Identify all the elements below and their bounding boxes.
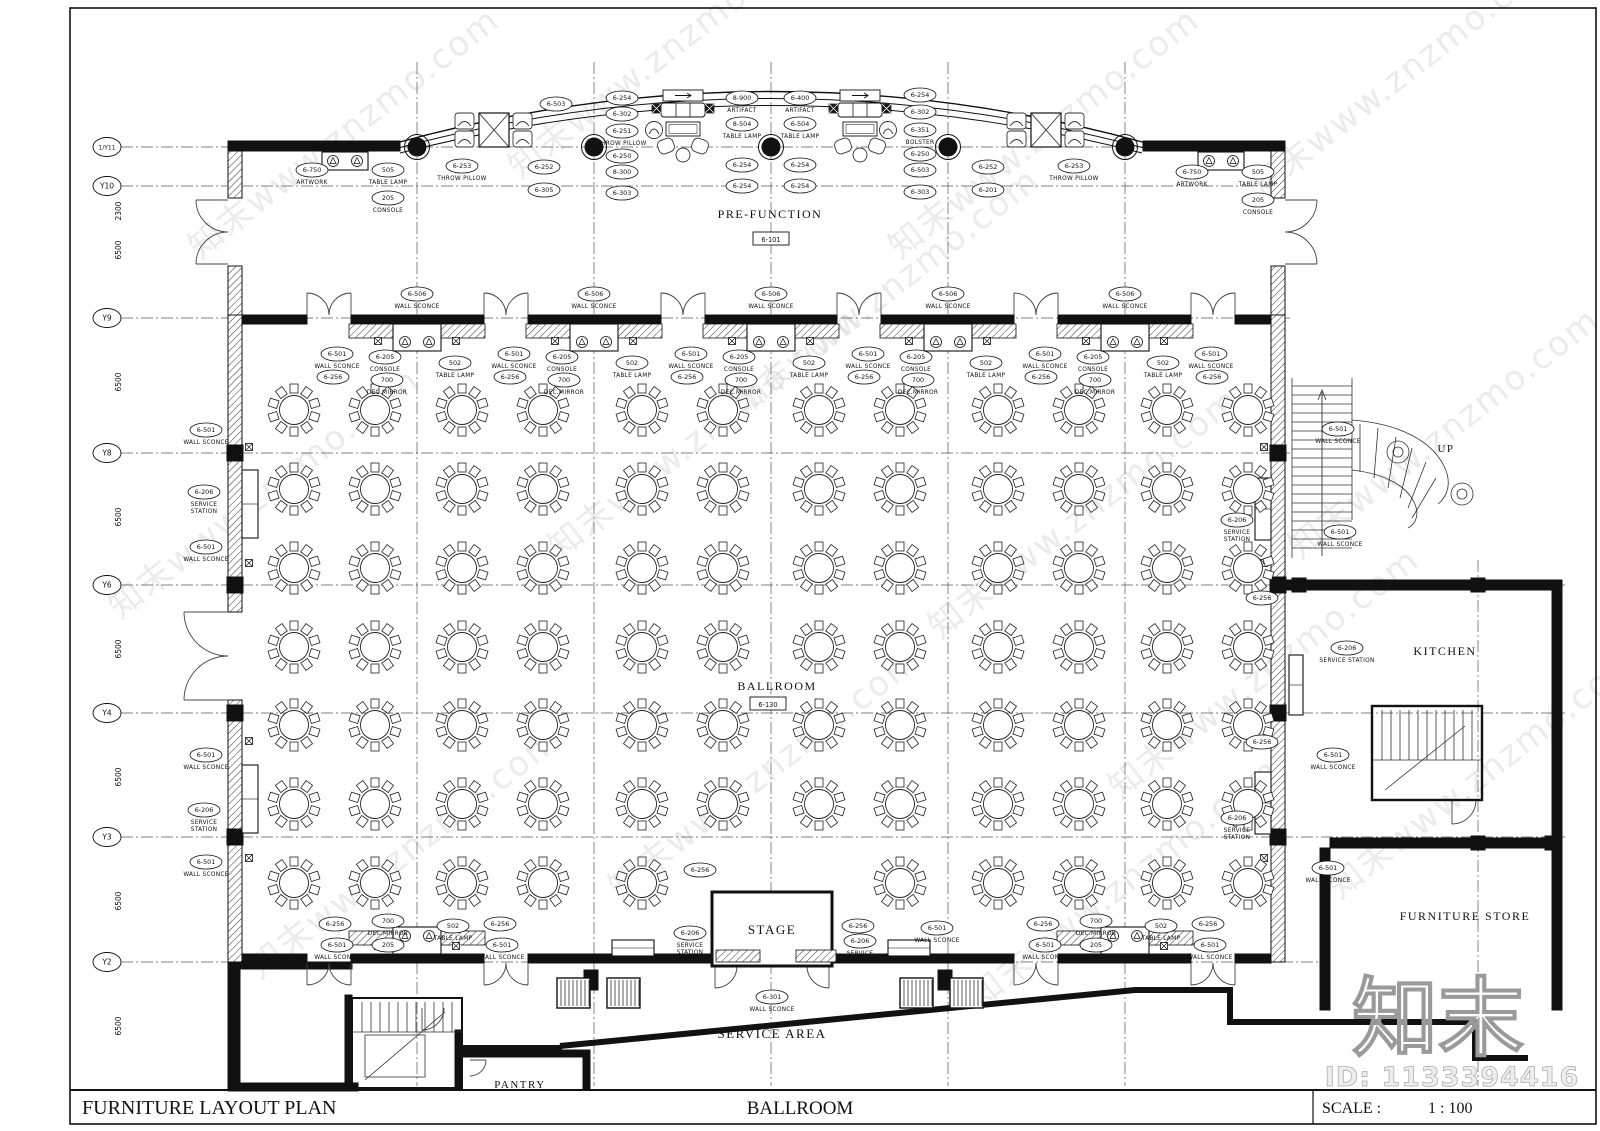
chair-icon <box>719 621 727 630</box>
callout-code: 502 <box>1155 922 1167 930</box>
chair-icon <box>697 556 708 566</box>
chair-icon <box>915 726 926 736</box>
chair-icon <box>290 427 298 436</box>
banquet-table <box>436 621 488 673</box>
chair-icon <box>979 624 991 636</box>
chair-icon <box>309 398 320 408</box>
callout-label: TABLE LAMP <box>368 180 408 186</box>
chair-icon <box>349 726 360 736</box>
callout-label: TABLE LAMP <box>435 373 475 379</box>
callout-code: 6-205 <box>376 353 395 361</box>
callout-tag: 6-254 <box>726 179 758 193</box>
callout-label: WALL SCONCE <box>1188 364 1233 370</box>
table-top <box>984 633 1013 662</box>
chair-icon <box>1005 624 1017 636</box>
table-top <box>448 633 477 662</box>
banquet-table <box>268 621 320 673</box>
chair-icon <box>371 542 379 551</box>
chair-icon <box>994 585 1002 594</box>
chair-icon <box>994 664 1002 673</box>
chair-icon <box>1244 699 1252 708</box>
callout-tag: 6-501WALL SCONCE <box>1188 347 1233 370</box>
chair-icon <box>458 384 466 393</box>
chair-icon <box>907 894 919 906</box>
chair-icon <box>382 702 394 714</box>
table-top <box>886 790 915 819</box>
table-top <box>1234 869 1263 898</box>
callout-tag: 6-205CONSOLE <box>369 350 401 373</box>
chair-icon <box>458 699 466 708</box>
chair-icon <box>1053 635 1064 645</box>
chair-icon <box>649 658 661 670</box>
chair-icon <box>738 648 749 658</box>
chair-icon <box>558 884 569 894</box>
chair-icon <box>972 648 983 658</box>
callout-code: 6-501 <box>493 941 512 949</box>
chair-icon <box>1141 805 1152 815</box>
chair-icon <box>477 713 488 723</box>
chair-icon <box>896 900 904 909</box>
chair-icon <box>539 821 547 830</box>
banquet-table <box>1053 699 1105 751</box>
callout-code: 505 <box>1252 168 1264 176</box>
chair-icon <box>290 384 298 393</box>
banquet-table <box>1222 542 1274 594</box>
chair-icon <box>1094 411 1105 421</box>
chair-icon <box>994 699 1002 708</box>
callout-code: 6-501 <box>505 350 524 358</box>
callout-tag: 6-750ARTWORK <box>296 163 328 186</box>
column-icon <box>939 138 958 157</box>
chair-icon <box>1013 477 1024 487</box>
chair-icon <box>1174 387 1186 399</box>
chair-icon <box>704 702 716 714</box>
chair-icon <box>390 635 401 645</box>
banquet-table <box>972 621 1024 673</box>
chair-icon <box>1174 894 1186 906</box>
chair-icon <box>874 871 885 881</box>
callout-tag: 6-256 <box>671 370 703 384</box>
chair-icon <box>558 648 569 658</box>
table-top <box>1153 396 1182 425</box>
callout-code: 700 <box>1089 376 1101 384</box>
table-top <box>628 475 657 504</box>
chair-icon <box>1182 556 1193 566</box>
chair-icon <box>994 506 1002 515</box>
chair-icon <box>469 624 481 636</box>
chair-icon <box>657 648 668 658</box>
callout-tag: 502TABLE LAMP <box>966 356 1006 379</box>
callout-tag: 505TABLE LAMP <box>368 163 408 186</box>
callout-code: 6-256 <box>491 920 510 928</box>
callout-label: STATION <box>847 958 874 964</box>
chair-icon <box>719 427 727 436</box>
table-top <box>529 396 558 425</box>
chair-icon <box>623 545 635 557</box>
callout-code: 6-256 <box>1203 373 1222 381</box>
callout-tag: 205CONSOLE <box>1242 193 1274 216</box>
chair-icon <box>881 781 893 793</box>
chair-icon <box>994 463 1002 472</box>
chair-icon <box>1222 490 1233 500</box>
callout-tag: 6-501WALL SCONCE <box>1187 938 1232 961</box>
callout-code: 6-750 <box>303 166 322 174</box>
callout-tag: 8-900ARTIFACT <box>726 91 758 114</box>
chair-icon <box>382 579 394 591</box>
chair-icon <box>458 427 466 436</box>
double-door-icon <box>484 963 506 985</box>
table-top <box>886 475 915 504</box>
chair-icon <box>834 805 845 815</box>
chair-icon <box>539 900 547 909</box>
chair-icon <box>1013 726 1024 736</box>
grid-dimension: 6500 <box>114 372 123 391</box>
chair-icon <box>1075 542 1083 551</box>
chair-icon <box>458 857 466 866</box>
chair-icon <box>1005 815 1017 827</box>
table-top <box>984 554 1013 583</box>
chair-icon <box>1182 569 1193 579</box>
callout-label: TABLE LAMP <box>966 373 1006 379</box>
callout-code: 6-254 <box>791 182 810 190</box>
chair-icon <box>558 635 569 645</box>
callout-tag: 205CONSOLE <box>1080 938 1112 961</box>
callout-label: SERVICE STATION <box>1319 658 1374 664</box>
chair-icon <box>436 411 447 421</box>
chair-icon <box>793 792 804 802</box>
room-label-ballroom: BALLROOM <box>737 679 816 693</box>
chair-icon <box>1141 556 1152 566</box>
lounge-chair-icon <box>455 113 474 129</box>
chair-icon <box>477 871 488 881</box>
banquet-table <box>349 621 401 673</box>
callout-code: 6-501 <box>1036 350 1055 358</box>
chair-icon <box>524 500 536 512</box>
chair-icon <box>649 545 661 557</box>
double-door-icon <box>1213 963 1235 985</box>
chair-icon <box>638 857 646 866</box>
callout-label: CONSOLE <box>547 367 577 373</box>
chair-icon <box>994 384 1002 393</box>
banquet-table <box>874 778 926 830</box>
chair-icon <box>623 387 635 399</box>
chair-icon <box>896 585 904 594</box>
callout-code: 205 <box>1252 196 1264 204</box>
chair-icon <box>309 726 320 736</box>
grid-dimension: 6500 <box>114 240 123 259</box>
callout-label: STATION <box>1224 835 1251 841</box>
chair-icon <box>356 466 368 478</box>
callout-tag: 6-302 <box>606 107 638 121</box>
chair-icon <box>979 815 991 827</box>
chair-icon <box>896 699 904 708</box>
chair-icon <box>800 815 812 827</box>
chair-icon <box>979 702 991 714</box>
chair-icon <box>458 621 466 630</box>
chair-icon <box>443 736 455 748</box>
callout-tag: 6-400ARTIFACT <box>784 91 816 114</box>
callout-tag: 6-256 <box>1192 917 1224 931</box>
chair-icon <box>1244 463 1252 472</box>
chair-icon <box>1086 781 1098 793</box>
table-top <box>529 633 558 662</box>
chair-icon <box>1013 490 1024 500</box>
chair-icon <box>1094 398 1105 408</box>
callout-code: 6-501 <box>197 543 216 551</box>
banquet-table <box>874 542 926 594</box>
callout-tag: 8-300 <box>606 165 638 179</box>
chair-icon <box>834 490 845 500</box>
double-door-icon <box>1213 293 1235 315</box>
chair-icon <box>558 726 569 736</box>
callout-tag: 6-501WALL SCONCE <box>1022 347 1067 370</box>
callout-tag: 6-256 <box>684 863 716 877</box>
chair-icon <box>550 500 562 512</box>
chair-icon <box>477 411 488 421</box>
chair-icon <box>356 736 368 748</box>
chair-icon <box>1163 664 1171 673</box>
chair-icon <box>539 664 547 673</box>
chair-icon <box>550 624 562 636</box>
chair-icon <box>443 860 455 872</box>
callout-code: 6-302 <box>911 108 930 116</box>
chair-icon <box>469 860 481 872</box>
console-icon <box>1101 324 1149 351</box>
chair-icon <box>443 500 455 512</box>
chair-icon <box>704 624 716 636</box>
chair-icon <box>550 894 562 906</box>
chair-icon <box>800 387 812 399</box>
chair-icon <box>994 542 1002 551</box>
chair-icon <box>638 664 646 673</box>
chair-icon <box>834 556 845 566</box>
chair-icon <box>436 871 447 881</box>
chair-icon <box>349 569 360 579</box>
chair-icon <box>1148 658 1160 670</box>
chair-icon <box>275 545 287 557</box>
callout-code: 6-206 <box>681 929 700 937</box>
chair-icon <box>558 713 569 723</box>
room-tag: 6-130 <box>758 701 777 709</box>
chair-icon <box>979 658 991 670</box>
callout-label: WALL SCONCE <box>183 557 228 563</box>
table-top <box>805 475 834 504</box>
chair-icon <box>371 463 379 472</box>
barrel-chair-icon <box>646 122 663 139</box>
callout-label: DEC.MIRROR <box>1076 931 1116 937</box>
chair-icon <box>616 556 627 566</box>
chair-icon <box>834 648 845 658</box>
chair-icon <box>390 477 401 487</box>
chair-icon <box>972 411 983 421</box>
callout-label: WALL SCONCE <box>1102 304 1147 310</box>
callout-code: 6-750 <box>1183 168 1202 176</box>
barrel-chair-icon <box>880 122 897 139</box>
callout-label: WALL SCONCE <box>394 304 439 310</box>
chair-icon <box>371 821 379 830</box>
callout-tag: 6-206SERVICESTATION <box>188 803 220 833</box>
chair-icon <box>697 490 708 500</box>
chair-icon <box>1013 648 1024 658</box>
chair-icon <box>815 621 823 630</box>
chair-icon <box>1163 463 1171 472</box>
chair-icon <box>290 699 298 708</box>
chair-icon <box>558 792 569 802</box>
chair-icon <box>458 463 466 472</box>
chair-icon <box>301 736 313 748</box>
chair-icon <box>1141 726 1152 736</box>
chair-icon <box>793 398 804 408</box>
column-icon <box>1116 138 1135 157</box>
callout-tag: 6-501WALL SCONCE <box>479 938 524 961</box>
callout-code: 6-501 <box>682 350 701 358</box>
callout-tag: 6-256 <box>848 370 880 384</box>
callout-label: STATION <box>1224 537 1251 543</box>
chair-icon <box>371 900 379 909</box>
chair-icon <box>1244 427 1252 436</box>
chair-icon <box>1244 857 1252 866</box>
chair-icon <box>436 556 447 566</box>
chair-icon <box>539 542 547 551</box>
chair-icon <box>730 624 742 636</box>
chair-icon <box>1141 792 1152 802</box>
chair-icon <box>874 884 885 894</box>
chair-icon <box>268 805 279 815</box>
table-top <box>448 554 477 583</box>
chair-icon <box>881 736 893 748</box>
chair-icon <box>657 490 668 500</box>
chair-icon <box>539 427 547 436</box>
chair-icon <box>356 781 368 793</box>
banquet-table <box>436 699 488 751</box>
table-top <box>529 790 558 819</box>
chair-icon <box>730 658 742 670</box>
chair-icon <box>1255 421 1267 433</box>
chair-icon <box>972 490 983 500</box>
chair-icon <box>1229 500 1241 512</box>
callout-tag: 6-750ARTWORK <box>1176 165 1208 188</box>
chair-icon <box>390 490 401 500</box>
chair-icon <box>874 726 885 736</box>
chair-icon <box>800 421 812 433</box>
callout-tag: 6-303 <box>904 185 936 199</box>
banquet-table <box>349 778 401 830</box>
chair-icon <box>657 398 668 408</box>
chair-icon <box>558 398 569 408</box>
chair-icon <box>1086 860 1098 872</box>
banquet-table <box>268 778 320 830</box>
callout-tag: 6-254 <box>784 158 816 172</box>
chair-icon <box>623 624 635 636</box>
chair-icon <box>1053 805 1064 815</box>
chair-icon <box>1182 792 1193 802</box>
callout-code: 700 <box>381 376 393 384</box>
banquet-table <box>268 857 320 909</box>
table-top <box>709 396 738 425</box>
room-label-furniture-store: FURNITURE STORE <box>1400 909 1531 923</box>
chair-icon <box>623 658 635 670</box>
chair-icon <box>1244 664 1252 673</box>
banquet-table <box>268 542 320 594</box>
callout-tag: 6-253THROW PILLOW <box>436 159 486 182</box>
callout-tag: 6-256 <box>1025 370 1057 384</box>
chair-icon <box>896 664 904 673</box>
callout-label: WALL SCONCE <box>479 955 524 961</box>
callout-code: 700 <box>912 376 924 384</box>
chair-icon <box>719 742 727 751</box>
chair-icon <box>1053 648 1064 658</box>
callout-tag: 6-501WALL SCONCE <box>183 855 228 878</box>
chair-icon <box>390 556 401 566</box>
callout-label: THROW PILLOW <box>1048 176 1098 182</box>
chair-icon <box>436 398 447 408</box>
banquet-table <box>972 463 1024 515</box>
chair-icon <box>1163 699 1171 708</box>
chair-icon <box>1075 778 1083 787</box>
table-top <box>361 790 390 819</box>
callout-code: 6-501 <box>859 350 878 358</box>
chair-icon <box>826 815 838 827</box>
chair-icon <box>382 658 394 670</box>
chair-icon <box>1005 781 1017 793</box>
chair-icon <box>539 778 547 787</box>
chair-icon <box>382 624 394 636</box>
banquet-table <box>436 857 488 909</box>
chair-icon <box>616 411 627 421</box>
grid-bubble-label: Y6 <box>101 581 112 590</box>
chair-icon <box>436 477 447 487</box>
chair-icon <box>1005 500 1017 512</box>
table-top <box>529 869 558 898</box>
chair-icon <box>1053 713 1064 723</box>
chair-icon <box>1182 884 1193 894</box>
table-top <box>1234 554 1263 583</box>
chair-icon <box>907 860 919 872</box>
callout-code: 6-206 <box>1228 814 1247 822</box>
chair-icon <box>874 569 885 579</box>
callout-tag: 205CONSOLE <box>372 938 404 961</box>
chair-icon <box>994 857 1002 866</box>
chair-icon <box>697 635 708 645</box>
banquet-table <box>697 621 749 673</box>
table-top <box>1065 633 1094 662</box>
chair-icon <box>907 624 919 636</box>
callout-label: WALL SCONCE <box>314 955 359 961</box>
grid-bubble-label: 1/Y11 <box>98 145 115 152</box>
chair-icon <box>719 585 727 594</box>
callout-label: TABLE LAMP <box>612 373 652 379</box>
chair-icon <box>1148 387 1160 399</box>
callout-label: WALL SCONCE <box>491 364 536 370</box>
double-door-icon <box>484 293 506 315</box>
chair-icon <box>815 427 823 436</box>
callout-code: 6-501 <box>1202 350 1221 358</box>
callout-code: 6-501 <box>1319 864 1338 872</box>
chair-icon <box>657 713 668 723</box>
chair-icon <box>268 411 279 421</box>
chair-icon <box>649 624 661 636</box>
chair-icon <box>301 387 313 399</box>
chair-icon <box>1053 398 1064 408</box>
table-top <box>984 711 1013 740</box>
chair-icon <box>469 387 481 399</box>
callout-tag: 6-201 <box>972 183 1004 197</box>
grid-dimension: 6500 <box>114 767 123 786</box>
callout-code: 205 <box>382 941 394 949</box>
chair-icon <box>638 778 646 787</box>
banquet-table <box>349 542 401 594</box>
table-top <box>1153 554 1182 583</box>
